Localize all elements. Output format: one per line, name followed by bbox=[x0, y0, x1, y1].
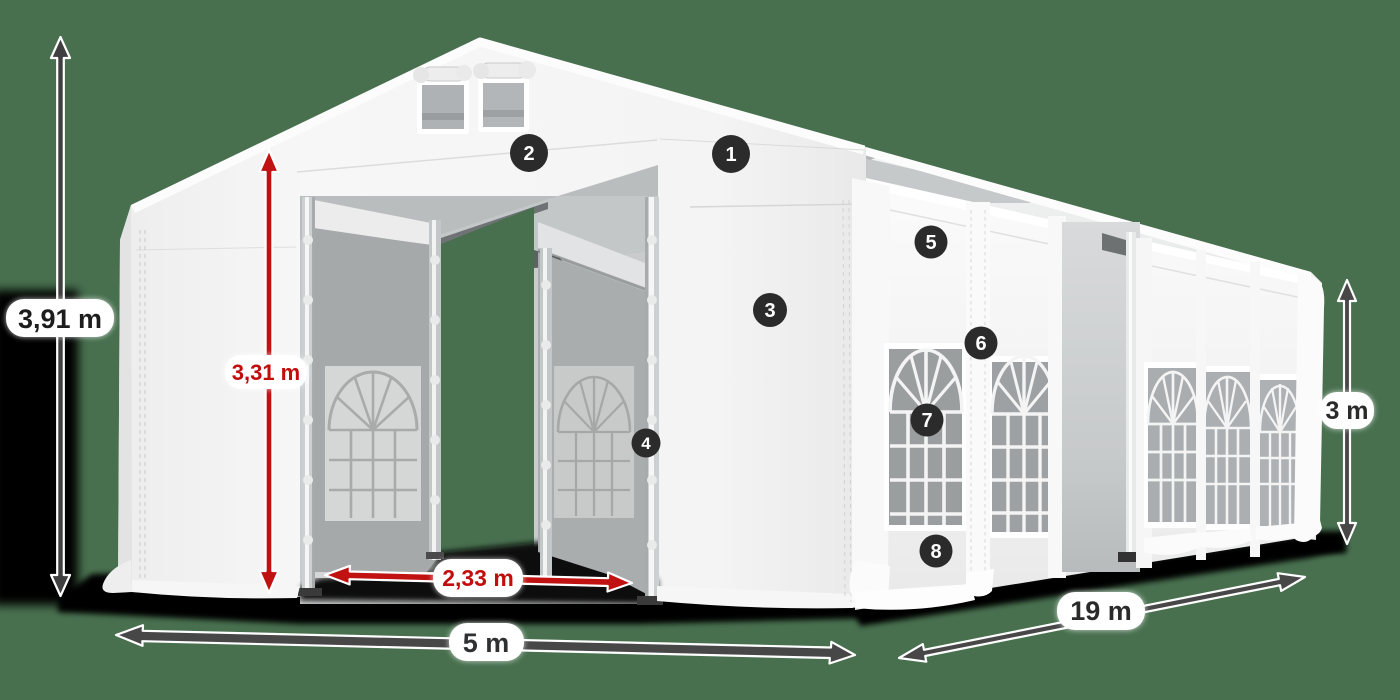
svg-text:7: 7 bbox=[921, 410, 932, 432]
svg-text:19 m: 19 m bbox=[1070, 596, 1132, 626]
svg-text:3 m: 3 m bbox=[1325, 397, 1368, 425]
svg-text:5 m: 5 m bbox=[463, 628, 510, 658]
svg-text:5: 5 bbox=[925, 232, 936, 254]
svg-text:4: 4 bbox=[641, 434, 651, 453]
svg-text:3: 3 bbox=[764, 300, 775, 322]
svg-text:1: 1 bbox=[725, 144, 736, 166]
svg-text:3,91 m: 3,91 m bbox=[18, 304, 102, 334]
svg-text:3,31 m: 3,31 m bbox=[232, 360, 301, 385]
svg-text:2: 2 bbox=[523, 143, 534, 165]
svg-text:8: 8 bbox=[930, 541, 941, 563]
svg-text:2,33 m: 2,33 m bbox=[442, 565, 514, 591]
svg-text:6: 6 bbox=[975, 333, 986, 355]
